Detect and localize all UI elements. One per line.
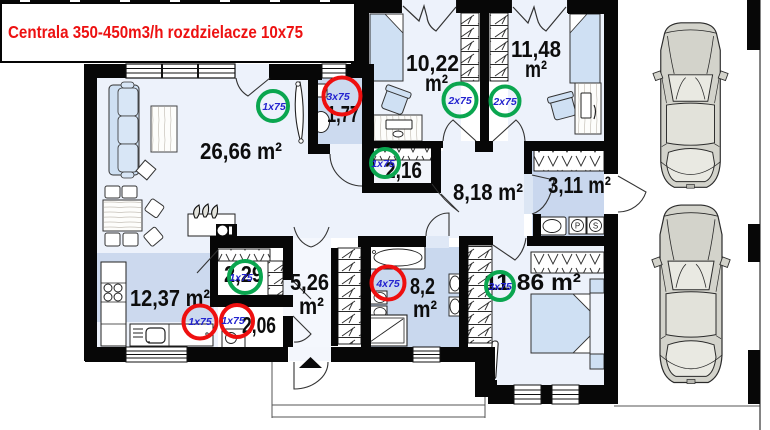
svg-text:4x75: 4x75 [375,278,400,290]
svg-text:Centrala 350-450m3/h rozdziela: Centrala 350-450m3/h rozdzielacze 10x75 [8,22,303,42]
svg-text:1x75: 1x75 [371,158,395,170]
svg-text:P: P [575,222,580,231]
svg-text:3x75: 3x75 [488,281,512,293]
svg-text:m²: m² [299,293,324,319]
svg-text:3x75: 3x75 [326,91,350,103]
svg-text:m²: m² [413,296,437,322]
svg-text:26,66 m²: 26,66 m² [200,138,282,164]
svg-text:8,18 m²: 8,18 m² [453,179,523,205]
svg-text:S: S [593,222,598,231]
svg-text:1x75: 1x75 [229,272,253,284]
svg-text:1x75: 1x75 [188,316,212,328]
svg-text:m²: m² [525,56,547,82]
svg-text:1x75: 1x75 [262,101,286,113]
svg-text:2x75: 2x75 [447,95,472,107]
svg-text:3,11 m²: 3,11 m² [548,172,611,198]
svg-text:2x75: 2x75 [492,96,517,108]
svg-text:5,26: 5,26 [290,269,329,295]
svg-text:1x75: 1x75 [221,315,245,327]
